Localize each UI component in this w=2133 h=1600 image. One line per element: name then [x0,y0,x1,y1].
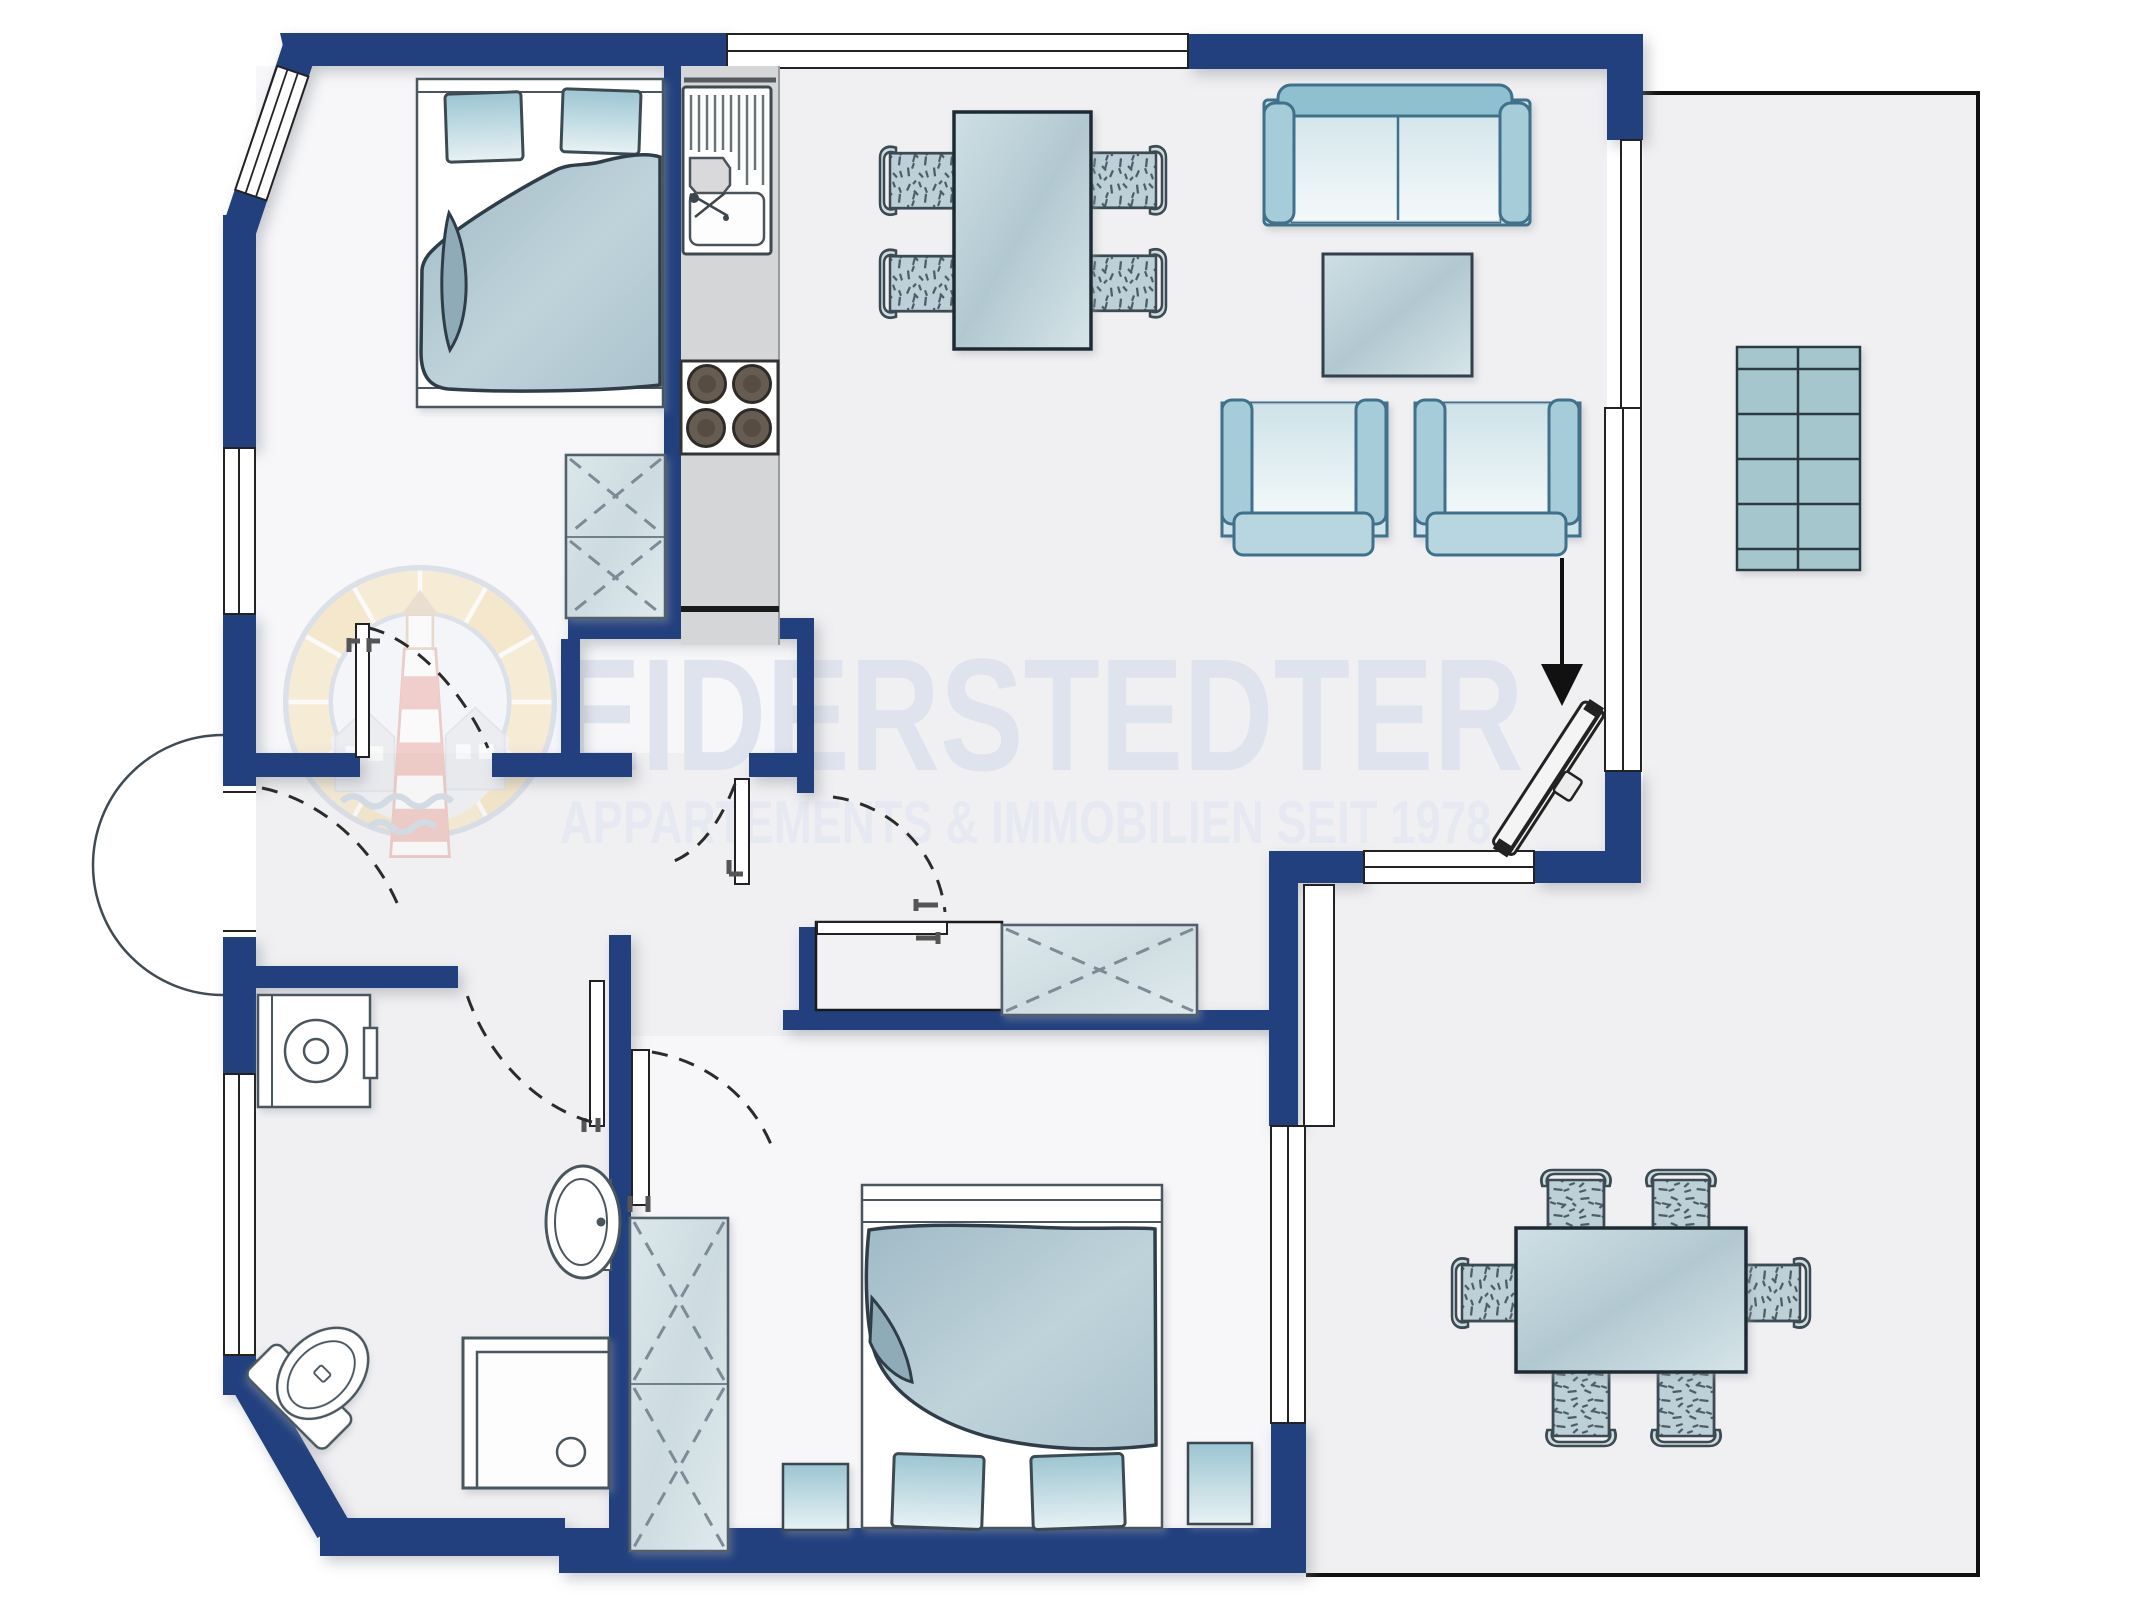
svg-text:EIDERSTEDTER: EIDERSTEDTER [558,626,1524,805]
svg-text:APPARTEMENTS & IMMOBILIEN SEIT: APPARTEMENTS & IMMOBILIEN SEIT 1978 [560,789,1492,856]
